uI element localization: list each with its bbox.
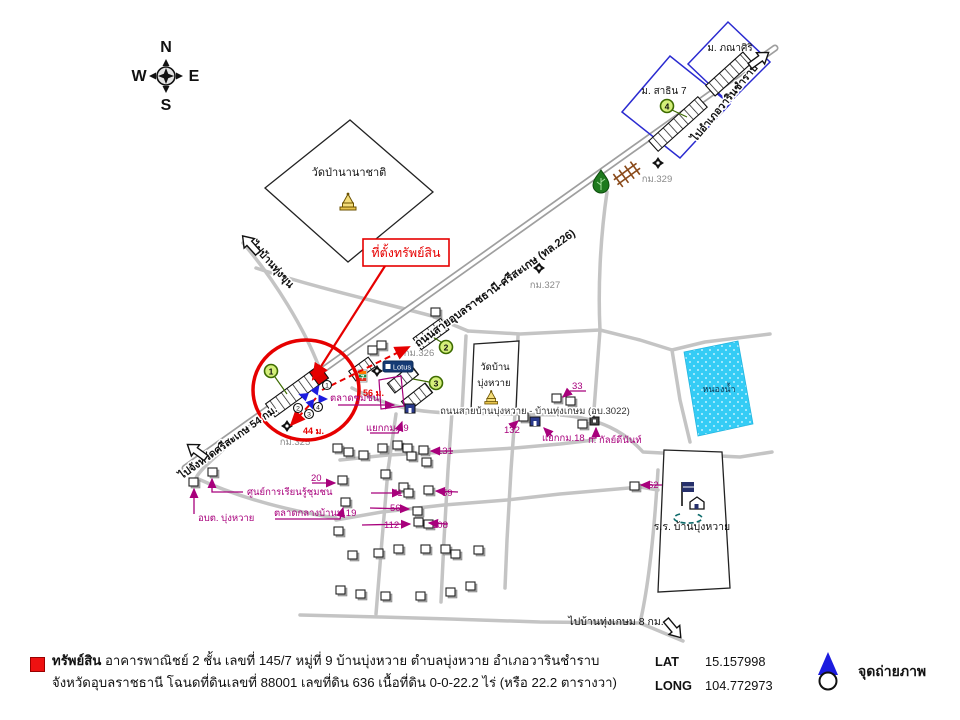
house-icon xyxy=(421,545,432,555)
km-marker-icon xyxy=(652,157,664,169)
green-point-2: 2 xyxy=(433,337,453,354)
house-icon xyxy=(407,452,418,462)
road-north-east xyxy=(468,330,600,334)
house-icon xyxy=(416,592,427,602)
house-icon xyxy=(441,545,452,555)
lat-value: 15.157998 xyxy=(705,654,766,669)
house-icon xyxy=(341,498,352,508)
house-icon xyxy=(394,545,405,555)
pond-north-road xyxy=(600,330,770,350)
photo-point-1: 1 xyxy=(323,381,332,390)
compass-s: S xyxy=(161,97,172,114)
house-icon xyxy=(419,446,430,456)
road-branch-east xyxy=(594,192,607,410)
lotus-logo: Lotus xyxy=(383,361,413,372)
photo-point-legend: จุดถ่ายภาพ xyxy=(812,650,926,694)
house-icon xyxy=(424,486,435,496)
svg-text:3: 3 xyxy=(434,378,439,388)
street-wat-west xyxy=(462,336,466,412)
property-location-map: วัดป่านานาชาติ ม. สาธิน 7 ม. ภณาศิริ วัด… xyxy=(0,0,960,648)
wat-ban-label-2: บุ่งหวาย xyxy=(477,378,510,389)
pond-label: หนองน้ำ xyxy=(702,382,735,394)
svg-text:Lotus: Lotus xyxy=(393,363,412,372)
house-icon xyxy=(446,588,457,598)
km329-label: กม.329 xyxy=(642,174,673,185)
to-thungkasem-label: ไปบ้านทุ่งเกษม 8 กม. xyxy=(567,615,663,628)
house-icon xyxy=(393,441,404,451)
subject-callout-label: ที่ตั้งทรัพย์สิน xyxy=(371,243,441,260)
compass-e: E xyxy=(189,68,200,85)
svg-text:2: 2 xyxy=(296,406,300,413)
house-108: 108 xyxy=(432,520,448,531)
house-icon xyxy=(414,518,425,528)
green-point-1: 1 xyxy=(265,365,288,395)
distance-44: 44 ม. xyxy=(303,426,324,436)
house-icon xyxy=(378,444,389,454)
moo-sathin-label: ม. สาธิน 7 xyxy=(641,86,687,97)
lat-row: LAT 15.157998 xyxy=(655,654,773,669)
long-label: LONG xyxy=(655,678,705,693)
school-west-road xyxy=(640,470,658,623)
wat-ban-label-1: วัดบ้าน xyxy=(480,362,510,373)
house-icon xyxy=(333,444,344,454)
wat-pa-label: วัดป่านานาชาติ xyxy=(312,167,387,179)
photo-point-icon xyxy=(812,650,844,694)
photo-point-4: 4 xyxy=(314,403,323,412)
shop-house-dark xyxy=(530,417,540,426)
obt-label: อบต. บุ่งหวาย xyxy=(198,513,254,524)
house-112-arrow xyxy=(362,524,410,525)
street-2 xyxy=(441,412,452,602)
compass-w: W xyxy=(131,68,147,85)
property-line-2: จังหวัดอุบลราชธานี โฉนดที่ดินเลขที่ 8800… xyxy=(52,672,622,694)
house-icon xyxy=(208,468,219,478)
svg-text:1: 1 xyxy=(325,383,329,390)
house-icon xyxy=(334,527,345,537)
house-59-arrow xyxy=(436,491,458,492)
house-icon xyxy=(381,470,392,480)
svg-text:1: 1 xyxy=(269,366,274,376)
legend: ทรัพย์สิน อาคารพาณิชย์ 2 ชั้น เลขที่ 145… xyxy=(0,648,960,720)
compass-n: N xyxy=(160,39,172,56)
house-112: 112 xyxy=(384,520,399,531)
house-icon xyxy=(381,592,392,602)
house-icon xyxy=(356,590,367,600)
photo-point-3: 3 xyxy=(305,410,314,419)
house-icon xyxy=(422,458,433,468)
house-icon xyxy=(348,551,359,561)
house-icon xyxy=(431,308,442,318)
house-icon xyxy=(413,507,424,517)
moo-phanasiri-label: ม. ภณาศิริ xyxy=(707,43,753,54)
house-icon xyxy=(189,478,200,488)
house-icon xyxy=(359,451,370,461)
road-to-thungkhun xyxy=(243,243,319,367)
house-icon xyxy=(336,586,347,596)
svg-text:4: 4 xyxy=(665,101,670,111)
photo-point-label: จุดถ่ายภาพ xyxy=(858,661,926,683)
house-59: 59 xyxy=(442,488,453,499)
long-value: 104.772973 xyxy=(705,678,773,693)
market-label: ตลาดชุมชน xyxy=(330,393,380,404)
svg-text:4: 4 xyxy=(316,405,320,412)
svg-text:3: 3 xyxy=(307,412,311,419)
property-description: ทรัพย์สิน อาคารพาณิชย์ 2 ชั้น เลขที่ 145… xyxy=(52,650,622,694)
svg-text:7: 7 xyxy=(361,375,365,382)
coordinates: LAT 15.157998 LONG 104.772973 xyxy=(655,654,773,702)
junction18-label: แยกกม.18 xyxy=(542,433,585,444)
learning-center-label: ศูนย์การเรียนรู้ชุมชน xyxy=(247,486,333,498)
house-icon xyxy=(451,550,462,560)
central-market-label: ตลาดกลางบ้านม.19 xyxy=(274,508,356,519)
school-label: ร.ร. บ้านบุ่งหวาย xyxy=(654,521,730,533)
house-icon xyxy=(374,549,385,559)
subject-color-swatch xyxy=(30,657,45,672)
long-row: LONG 104.772973 xyxy=(655,678,773,693)
lat-label: LAT xyxy=(655,654,705,669)
km327-label: กม.327 xyxy=(530,280,561,291)
house-icon xyxy=(474,546,485,556)
house-icon xyxy=(344,448,355,458)
km-marker-icon xyxy=(281,420,293,432)
house-icon xyxy=(552,394,563,404)
local-road-label: ถนนสายบ้านบุ่งหวาย - บ้านทุ่งเกษม (อบ.30… xyxy=(440,406,630,417)
svg-text:2: 2 xyxy=(444,342,449,352)
compass-icon xyxy=(149,59,183,93)
compass-rose: N W E S xyxy=(131,39,199,114)
house-icon xyxy=(630,482,641,492)
shop-house-dark xyxy=(405,404,415,413)
house-icon xyxy=(377,341,388,351)
property-line-1: ทรัพย์สิน อาคารพาณิชย์ 2 ชั้น เลขที่ 145… xyxy=(52,650,622,672)
photo-point-2: 2 xyxy=(294,404,303,413)
house-icon xyxy=(404,489,415,499)
to-sisaket-label: ไปจังหวัดศรีสะเกษ 54 กม. xyxy=(175,403,279,483)
house-icon xyxy=(466,582,477,592)
house-icon xyxy=(578,420,589,430)
house-icon xyxy=(338,476,349,486)
property-term: ทรัพย์สิน xyxy=(52,653,101,668)
